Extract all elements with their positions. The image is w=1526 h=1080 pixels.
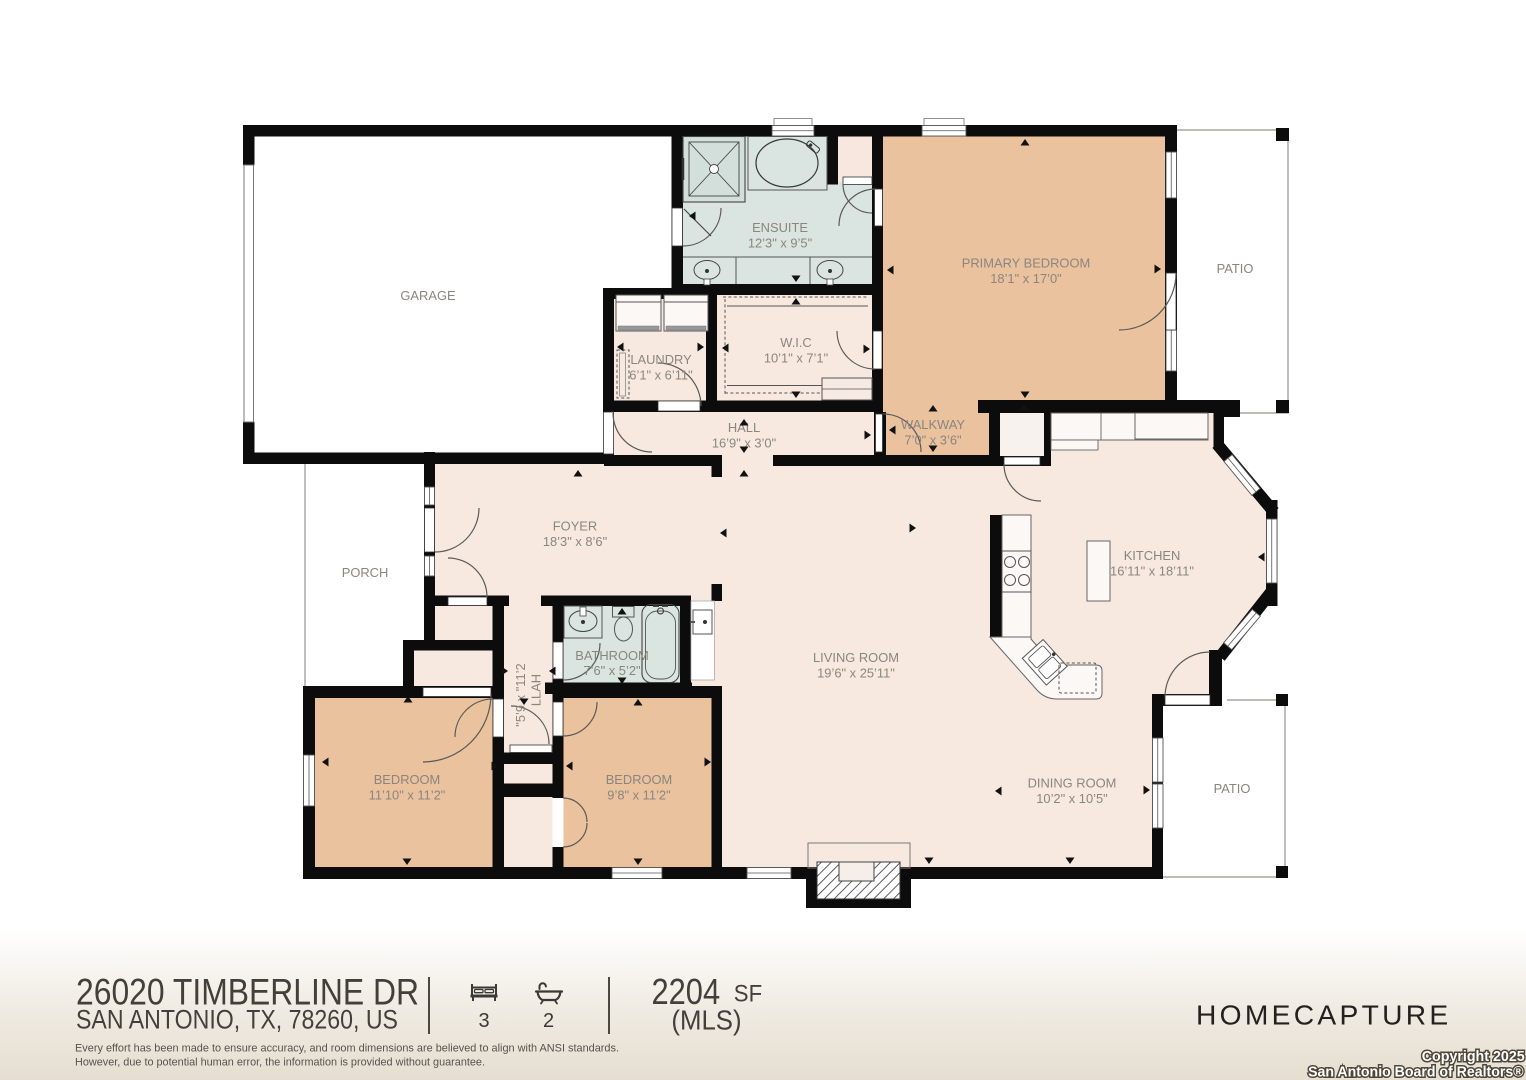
svg-text:Every effort has been made to: Every effort has been made to ensure acc… <box>75 1043 619 1055</box>
svg-text:(MLS): (MLS) <box>671 1005 741 1036</box>
svg-text:HOMECAPTURE: HOMECAPTURE <box>1196 999 1449 1031</box>
svg-text:Copyright 2025: Copyright 2025 <box>1422 1049 1525 1065</box>
svg-text:However, due to potential huma: However, due to potential human error, t… <box>75 1057 485 1069</box>
svg-text:2: 2 <box>543 1010 554 1032</box>
svg-text:San Antonio Board of Realtors®: San Antonio Board of Realtors® <box>1308 1065 1524 1080</box>
svg-text:SAN ANTONIO, TX, 78260, US: SAN ANTONIO, TX, 78260, US <box>76 1004 398 1034</box>
svg-text:3: 3 <box>478 1010 489 1032</box>
